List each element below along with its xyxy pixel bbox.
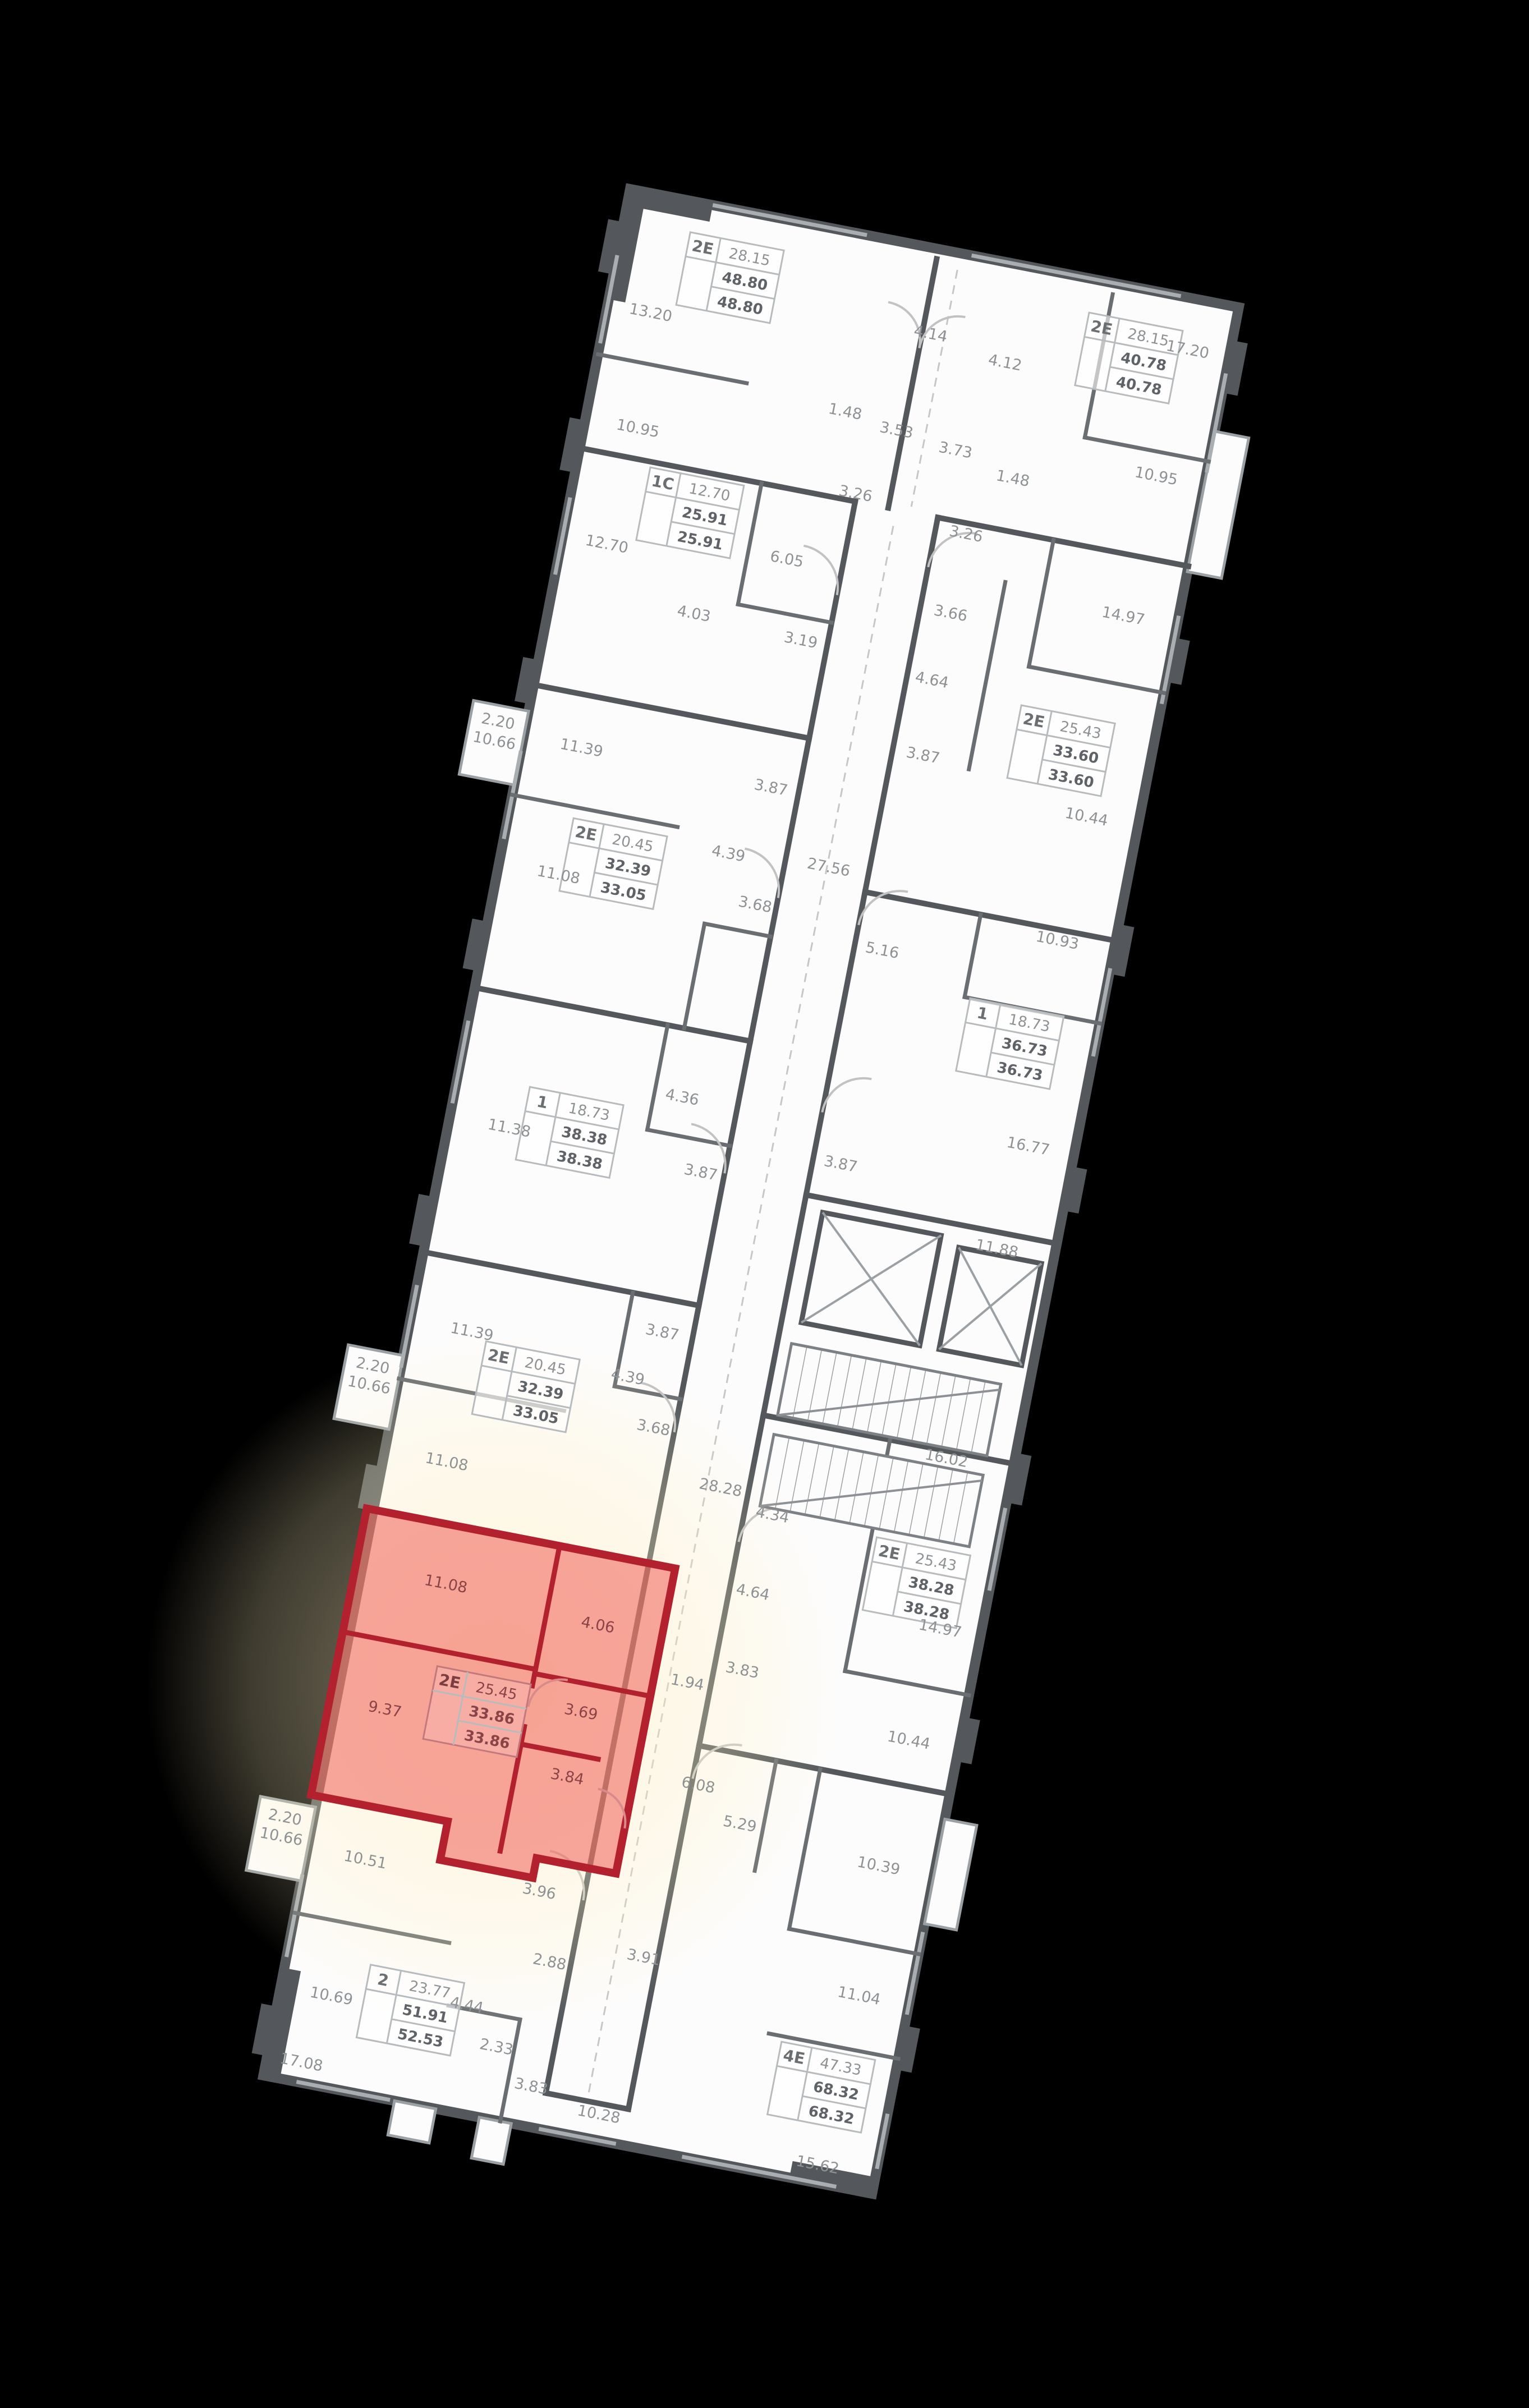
balcony bbox=[388, 2101, 435, 2143]
floorplan-image: 2Е28.1548.8048.802Е28.1540.7840.781С12.7… bbox=[0, 0, 1529, 2408]
floorplan-viewer: 2Е28.1548.8048.802Е28.1540.7840.781С12.7… bbox=[0, 0, 1529, 2408]
balcony bbox=[471, 2117, 511, 2165]
